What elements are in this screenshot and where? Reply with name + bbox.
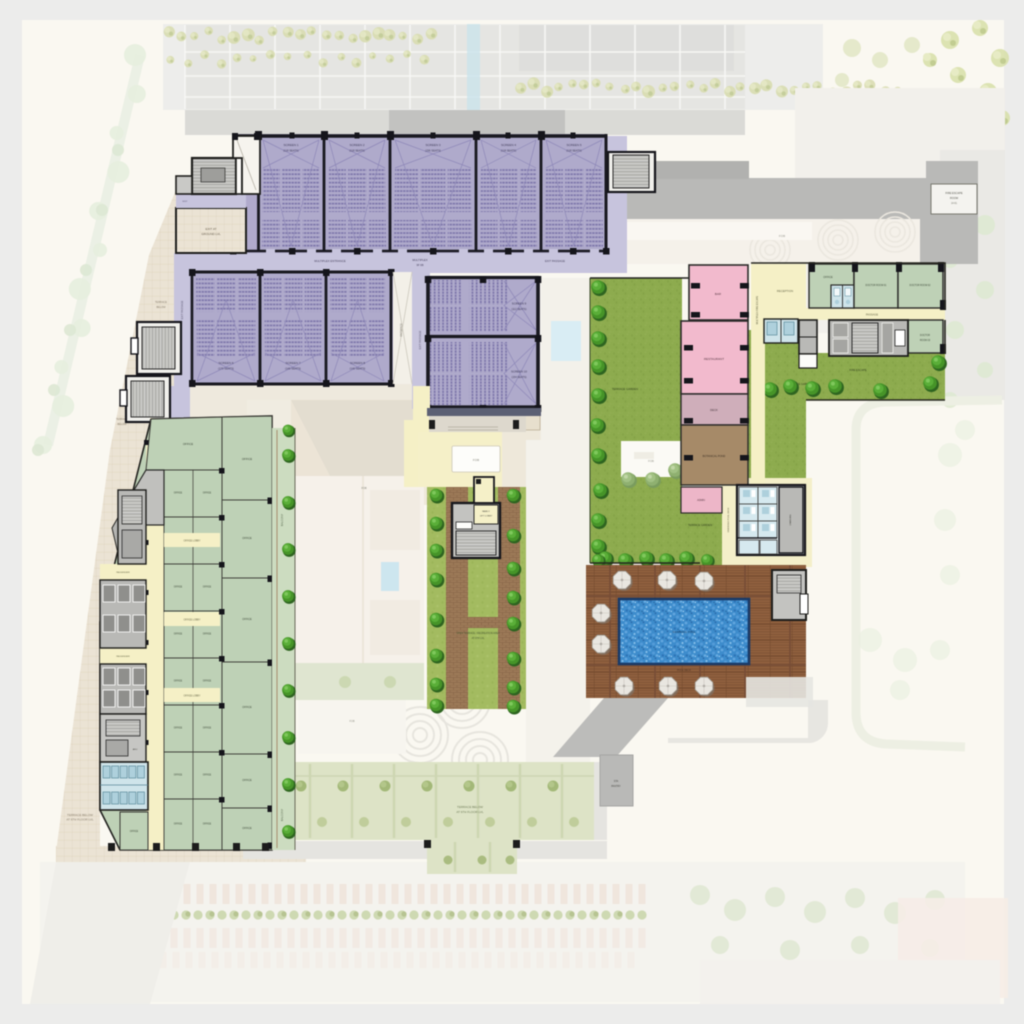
svg-text:PASSENGER: PASSENGER <box>116 655 130 658</box>
svg-text:BOTANICAL POND: BOTANICAL POND <box>703 454 726 458</box>
svg-text:ROOM: ROOM <box>950 196 958 200</box>
svg-text:SCREEN 5: SCREEN 5 <box>566 143 581 147</box>
svg-text:SCREEN 9: SCREEN 9 <box>512 302 527 306</box>
svg-text:AHU: AHU <box>133 748 138 751</box>
svg-text:OFFICE: OFFICE <box>174 824 183 826</box>
svg-text:AT 6TH FLOOR LVL: AT 6TH FLOOR LVL <box>456 810 484 814</box>
svg-text:(236 SEATS): (236 SEATS) <box>425 149 441 153</box>
svg-text:OFFICE: OFFICE <box>242 617 252 621</box>
svg-text:BELOW: BELOW <box>117 423 127 426</box>
svg-text:MULTIPLEX ENTRANCE: MULTIPLEX ENTRANCE <box>314 259 346 263</box>
svg-text:OFFICE: OFFICE <box>174 681 183 683</box>
svg-text:(170 SEATS): (170 SEATS) <box>218 367 234 371</box>
svg-text:PANTRY: PANTRY <box>611 785 621 788</box>
svg-text:FOB: FOB <box>648 459 654 463</box>
svg-text:SCREEN 1: SCREEN 1 <box>283 143 298 147</box>
svg-text:OFFICE LOBBY: OFFICE LOBBY <box>184 541 201 543</box>
svg-text:(140 SEATS): (140 SEATS) <box>350 367 366 371</box>
svg-text:TERRACE BELOW: TERRACE BELOW <box>67 813 93 817</box>
svg-text:OFFICE: OFFICE <box>183 442 193 446</box>
svg-text:SCREEN 8: SCREEN 8 <box>350 361 365 365</box>
svg-text:TERRACE GARDEN: TERRACE GARDEN <box>688 523 712 527</box>
svg-text:SWIMMING POOL: SWIMMING POOL <box>672 630 696 634</box>
svg-text:SCREEN 2: SCREEN 2 <box>349 143 364 147</box>
svg-text:EXIT PASSAGE: EXIT PASSAGE <box>418 330 422 349</box>
svg-text:PASSAGE: PASSAGE <box>866 313 878 317</box>
svg-text:SCREEN 6: SCREEN 6 <box>218 361 233 365</box>
svg-text:OFFICE: OFFICE <box>242 457 252 461</box>
svg-text:EXIT: EXIT <box>183 201 189 203</box>
svg-text:PASSENGER: PASSENGER <box>116 571 130 574</box>
svg-text:OFFICE: OFFICE <box>203 824 212 826</box>
svg-text:AT 6TH LVL: AT 6TH LVL <box>472 637 485 640</box>
svg-text:FOB: FOB <box>361 486 367 490</box>
svg-text:EXIT PASSAGE: EXIT PASSAGE <box>180 300 184 319</box>
svg-text:OFFICE: OFFICE <box>174 728 183 730</box>
svg-text:OFFICE: OFFICE <box>203 728 212 730</box>
svg-text:(112 SEATS): (112 SEATS) <box>512 307 527 311</box>
svg-text:DOCTOR ROOM 02: DOCTOR ROOM 02 <box>910 285 932 287</box>
svg-text:OFFICE: OFFICE <box>174 775 183 777</box>
svg-text:ENTRANCE: ENTRANCE <box>400 323 403 337</box>
svg-text:(154 SEATS): (154 SEATS) <box>511 375 526 379</box>
svg-text:OFFICE: OFFICE <box>242 536 252 540</box>
svg-text:OFFICE: OFFICE <box>242 705 252 709</box>
svg-text:OFFICE: OFFICE <box>174 493 183 495</box>
svg-text:FIRE ESCAPE: FIRE ESCAPE <box>849 368 866 372</box>
svg-text:BELOW: BELOW <box>156 306 166 309</box>
svg-text:SCREEN 4: SCREEN 4 <box>501 143 516 147</box>
svg-text:OFFICE: OFFICE <box>203 681 212 683</box>
svg-text:FOB: FOB <box>779 234 785 238</box>
svg-text:(118 SEATS): (118 SEATS) <box>349 149 365 153</box>
svg-text:CHANGING: CHANGING <box>789 514 792 526</box>
svg-text:ADMIN: ADMIN <box>697 499 705 502</box>
svg-text:14-61: 14-61 <box>951 202 958 205</box>
svg-text:TERRACE GARDEN: TERRACE GARDEN <box>612 387 638 391</box>
svg-text:DOCTOR: DOCTOR <box>920 335 930 337</box>
svg-text:TERRACE BELOW: TERRACE BELOW <box>457 805 483 809</box>
svg-text:BAR: BAR <box>715 292 722 296</box>
svg-text:(118 SEATS): (118 SEATS) <box>283 149 299 153</box>
svg-text:OFFICE: OFFICE <box>203 493 212 495</box>
svg-text:OFFICE LOBBY: OFFICE LOBBY <box>184 620 201 622</box>
svg-text:OFFICE: OFFICE <box>242 826 252 830</box>
svg-text:TERRACE: TERRACE <box>155 301 167 304</box>
svg-text:RESTAURANT: RESTAURANT <box>704 357 724 361</box>
svg-text:POOL DECK: POOL DECK <box>677 669 691 672</box>
svg-text:OFFICE: OFFICE <box>203 634 212 636</box>
svg-text:(140 SEATS): (140 SEATS) <box>285 367 301 371</box>
svg-text:SWIMMING POOL DECK: SWIMMING POOL DECK <box>728 507 730 532</box>
svg-text:OFFICE: OFFICE <box>823 275 833 279</box>
svg-text:EXIT AT: EXIT AT <box>206 227 217 231</box>
svg-text:OFFICE: OFFICE <box>203 587 212 589</box>
svg-text:SCREEN 10: SCREEN 10 <box>511 370 527 374</box>
svg-text:OPEN TERRACE / RECREATION AREA: OPEN TERRACE / RECREATION AREA <box>456 632 500 635</box>
svg-text:(118 SEATS): (118 SEATS) <box>501 149 517 153</box>
svg-text:EXIT PASSAGE: EXIT PASSAGE <box>545 259 565 263</box>
svg-text:DECK: DECK <box>710 408 718 412</box>
svg-text:FOB: FOB <box>473 458 479 462</box>
svg-text:9F 6B: 9F 6B <box>417 263 424 267</box>
svg-text:OFFICE: OFFICE <box>130 831 139 833</box>
svg-text:DOCTOR ROOM 01: DOCTOR ROOM 01 <box>866 285 888 287</box>
svg-text:FAMILY: FAMILY <box>482 510 490 513</box>
svg-text:SCREEN 3: SCREEN 3 <box>425 143 440 147</box>
svg-text:LIFT LOBBY: LIFT LOBBY <box>480 516 493 518</box>
svg-text:(118 SEATS): (118 SEATS) <box>566 149 582 153</box>
svg-text:BALCONY: BALCONY <box>280 809 284 822</box>
svg-text:RECEPTION: RECEPTION <box>777 289 793 293</box>
svg-text:OFFICE: OFFICE <box>203 775 212 777</box>
svg-text:SCREEN 7: SCREEN 7 <box>285 361 300 365</box>
svg-text:ROOM 03: ROOM 03 <box>920 340 931 342</box>
svg-text:STA: STA <box>614 780 619 783</box>
svg-text:AT 6TH FLOOR LVL: AT 6TH FLOOR LVL <box>66 818 94 822</box>
svg-text:OFFICE LOBBY: OFFICE LOBBY <box>184 696 201 698</box>
svg-text:GROUND LVL: GROUND LVL <box>201 232 221 236</box>
svg-text:MULTIPLEX: MULTIPLEX <box>412 258 427 262</box>
svg-text:BALCONY: BALCONY <box>280 514 284 527</box>
svg-text:MULTIPLEX FIRE ESCAPE: MULTIPLEX FIRE ESCAPE <box>756 295 759 324</box>
svg-text:OFFICE: OFFICE <box>174 587 183 589</box>
svg-text:FOB: FOB <box>349 719 355 723</box>
svg-text:OFFICE: OFFICE <box>174 634 183 636</box>
svg-text:FIRE ESCAPE: FIRE ESCAPE <box>945 191 962 195</box>
svg-text:OFFICE: OFFICE <box>242 778 252 782</box>
